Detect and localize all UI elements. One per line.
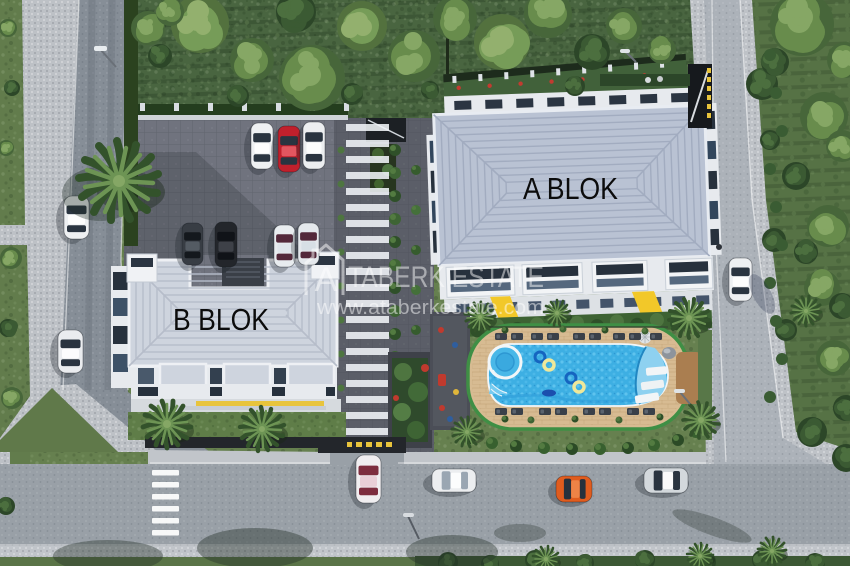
svg-text:A: A bbox=[315, 261, 338, 299]
svg-text:TABERK ESTATE: TABERK ESTATE bbox=[348, 261, 544, 294]
svg-text:B BLOK: B BLOK bbox=[173, 302, 269, 337]
svg-text:www.ataberkestate.com: www.ataberkestate.com bbox=[316, 297, 544, 319]
svg-text:A BLOK: A BLOK bbox=[523, 171, 618, 206]
